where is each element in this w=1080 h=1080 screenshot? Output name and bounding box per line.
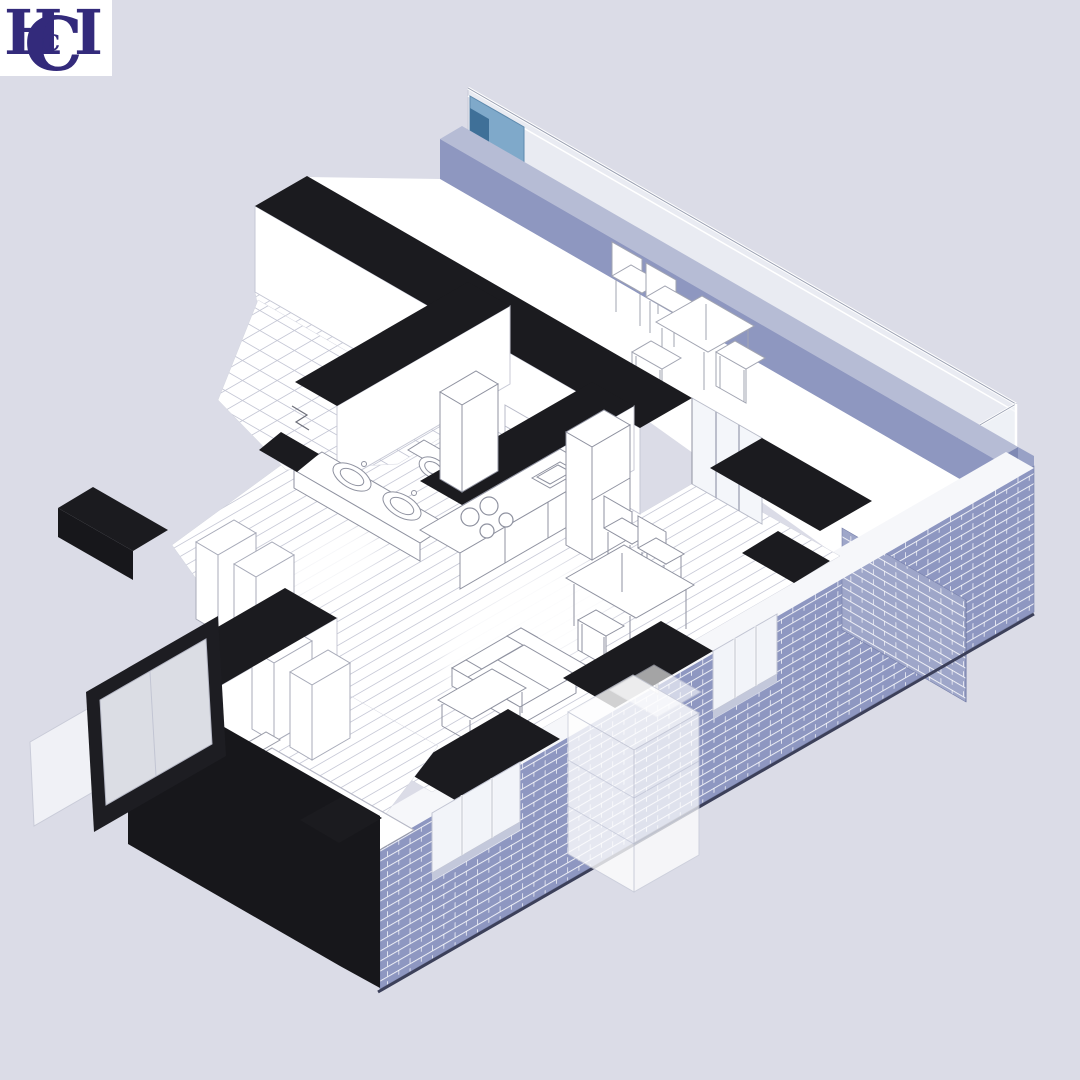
- drawing-stage: H C c I: [0, 0, 1080, 1080]
- screenshot-root: { "logo": { "letters": { "h": "H", "c_bi…: [0, 0, 1080, 1080]
- logo: H C c I: [0, 0, 112, 76]
- logo-letter-i: I: [74, 2, 103, 64]
- apartment-axonometric-drawing: [0, 0, 1080, 1080]
- tall-cabinet: [440, 371, 498, 492]
- logo-letter-small-c: c: [42, 26, 60, 56]
